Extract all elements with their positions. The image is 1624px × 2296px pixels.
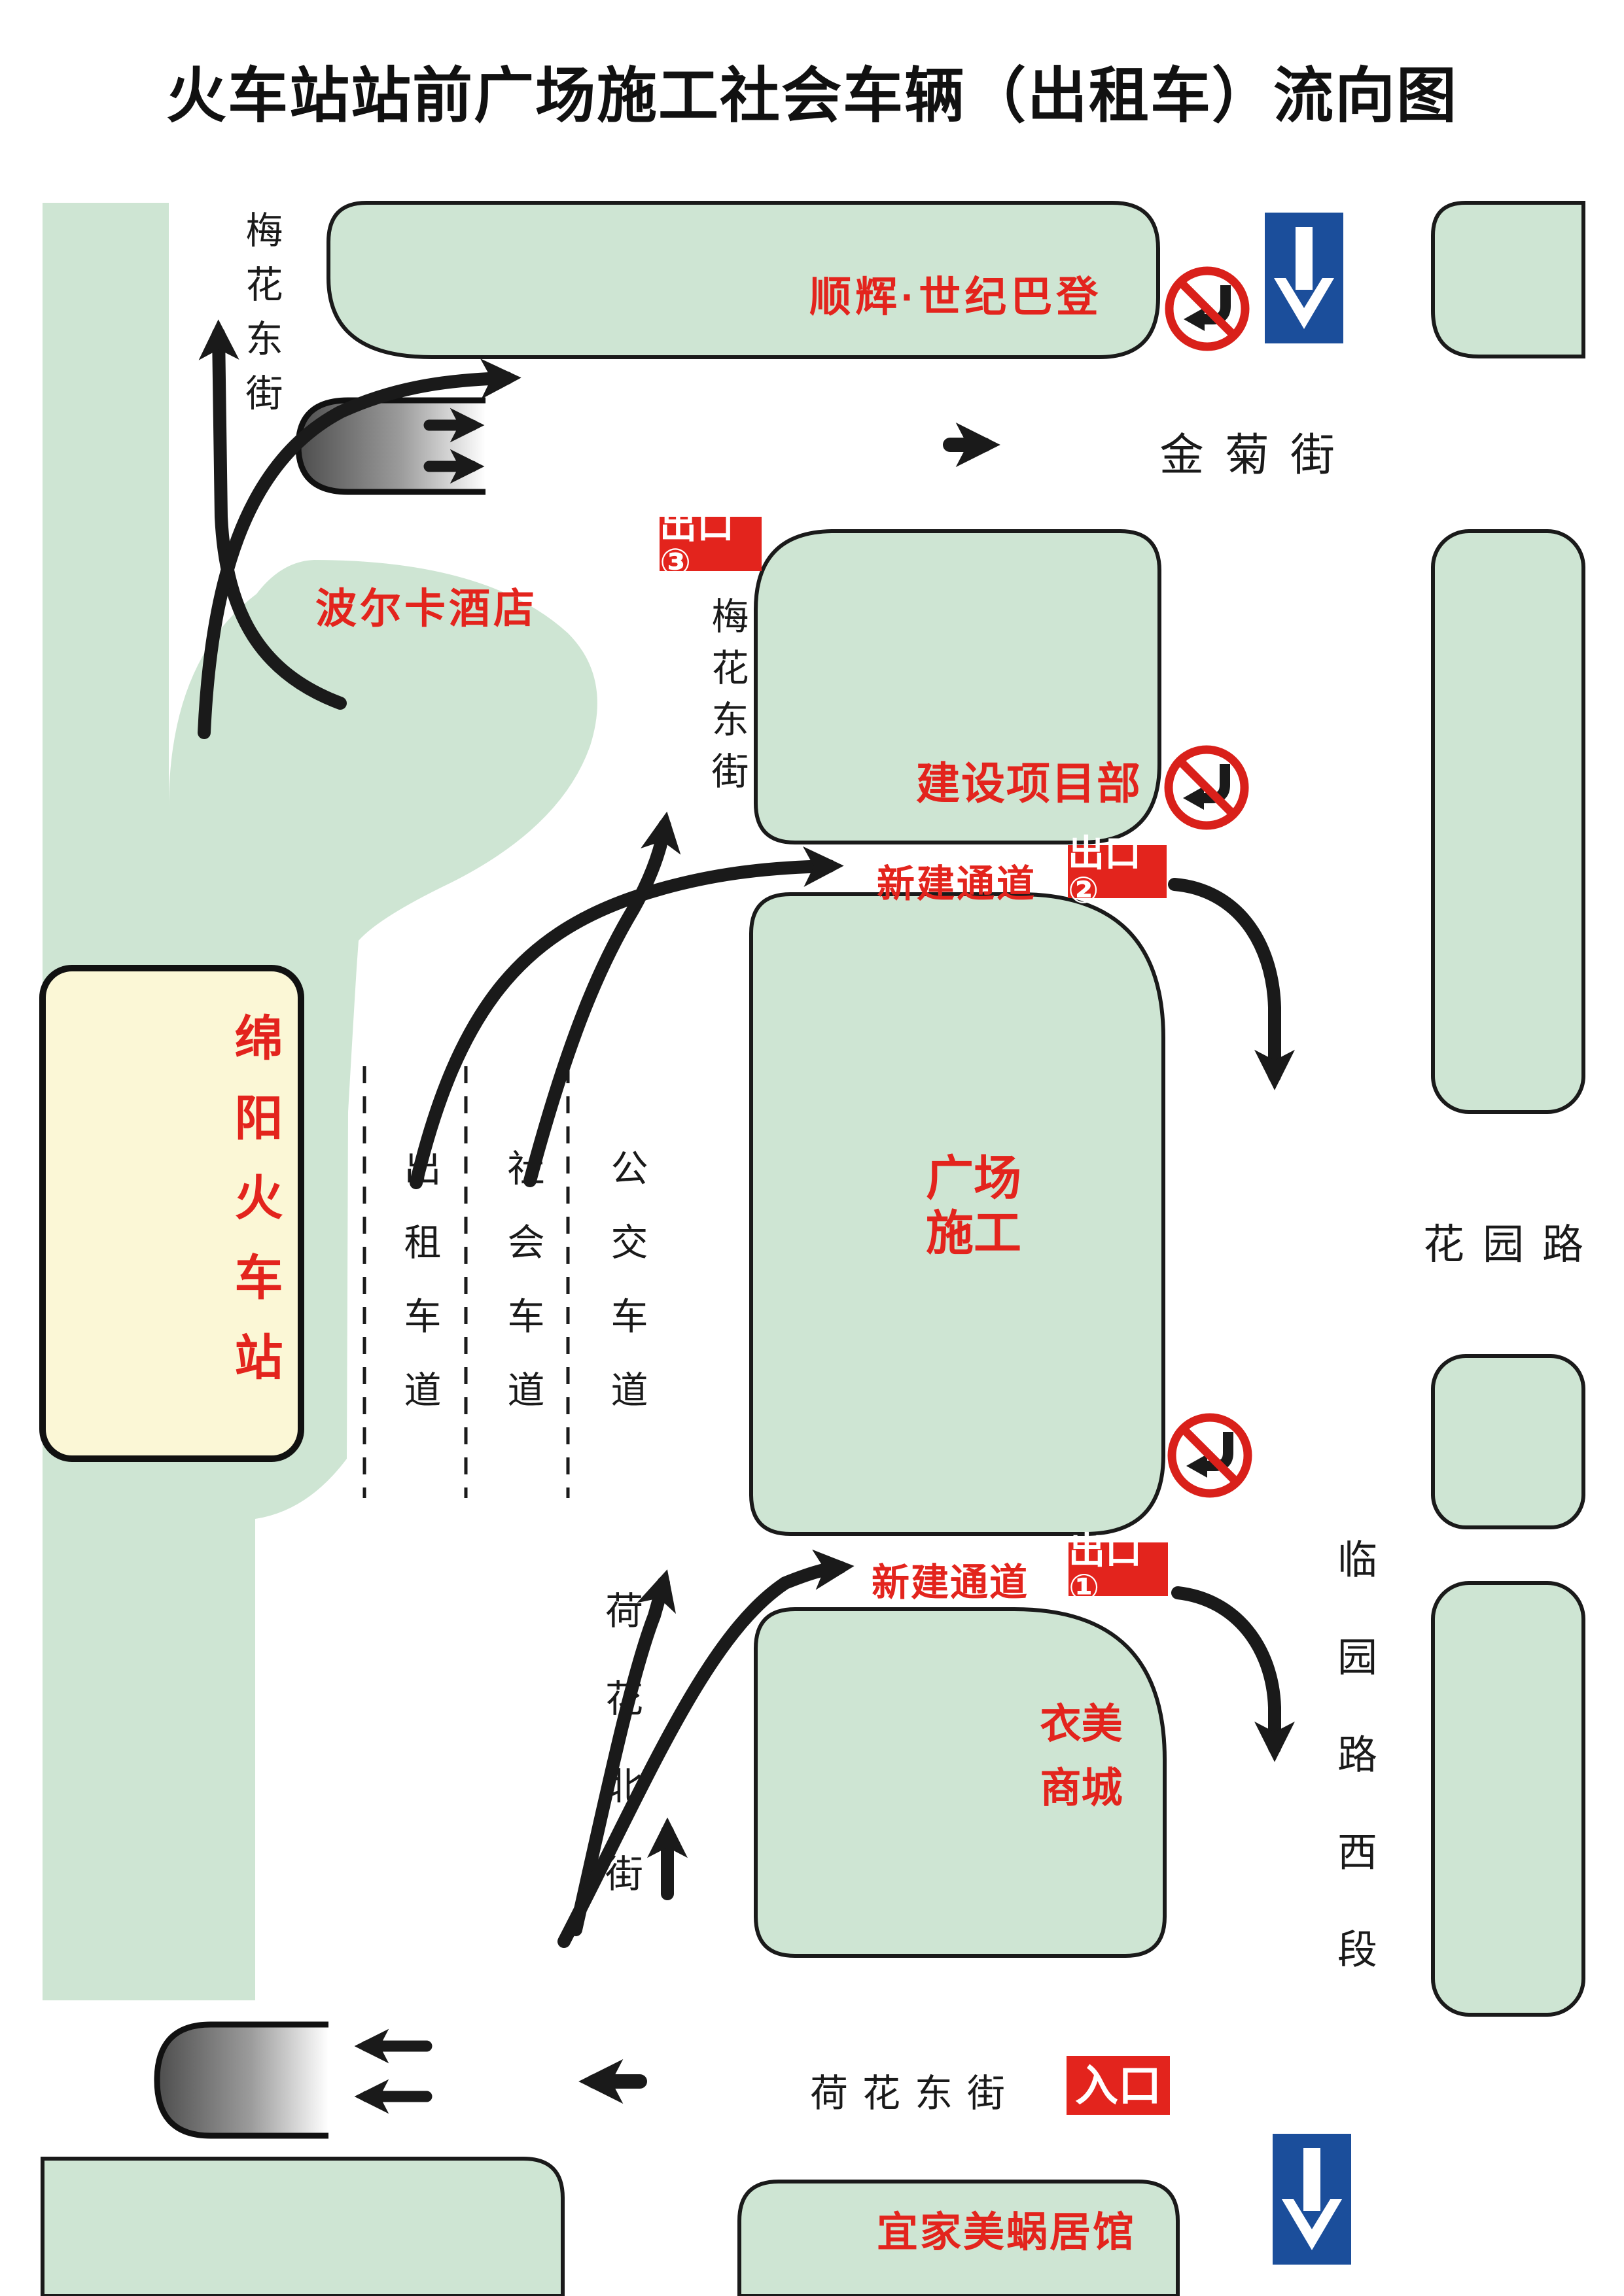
underpass-bottom [157,2025,328,2136]
street-label-hehua-north: 荷花北街 [593,1591,648,1941]
street-label-linyuan-west: 临园路西段 [1325,1539,1383,2026]
flow-social-to-meihua-arrow [530,826,665,1181]
building-label-yijia: 宜家美蜗居馆 [877,2199,1136,2259]
underpass-gradient [157,2025,328,2136]
down-arrow-shaft [1296,227,1313,290]
page-title: 火车站站前广场施工社会车辆（出租车）流向图 [0,47,1624,134]
entrance-badge: 入口 [1067,2056,1170,2115]
no-left-turn-sign-icon-bottom [1172,1418,1248,1493]
building-label-square-construction: 广场 施工 [915,1151,1033,1261]
street-label-huayuan: 花园路 [1423,1211,1602,1271]
lane-label-bus: 公交车道 [599,1149,653,1444]
exit2-flow-arrow [1174,884,1275,1076]
block-bus-terminal [1433,1583,1583,2015]
street-label-hehua-east: 荷花东街 [810,2062,1019,2117]
block-bottom-left [43,2159,563,2296]
new-passage-lower-label: 新建通道 [872,1552,1029,1607]
block-right-upper [1433,531,1583,1112]
block-right-middle [1433,1356,1583,1527]
green-strip-left [43,203,169,968]
one-way-down-sign-icon-bottom [1273,2134,1351,2265]
no-left-turn-sign-icon-middle [1169,750,1244,826]
street-label-jinju: 金菊街 [1159,419,1356,483]
building-label-construction-office: 建设项目部 [916,748,1142,812]
block-top-right [1433,203,1583,357]
building-label-railway-station: 绵阳火车站 [220,1013,290,1412]
street-label-meihua-mid: 梅花东街 [700,597,754,803]
down-arrow-shaft [1303,2148,1320,2211]
traffic-flow-map-page: { "title": "火车站站前广场施工社会车辆（出租车）流向图", "col… [0,0,1624,2296]
exit3-badge: 出口③ [660,517,762,571]
lane-label-taxi: 出租车道 [393,1149,446,1444]
building-label-shunhui: 顺辉·世纪巴登 [809,264,1102,324]
lane-label-social: 社会车道 [496,1149,550,1444]
one-way-down-sign-icon-top [1265,213,1343,343]
exit1-flow-arrow [1178,1593,1275,1748]
street-label-meihua-top: 梅花东街 [234,211,288,428]
building-label-yimei-mall: 衣美 商城 [1021,1693,1142,1820]
exit1-badge: 出口① [1068,1542,1168,1596]
no-left-turn-sign-icon-top [1169,271,1245,347]
exit2-badge: 出口② [1068,845,1167,898]
new-passage-upper-label: 新建通道 [877,853,1036,908]
building-label-polka-hotel: 波尔卡酒店 [315,576,538,635]
